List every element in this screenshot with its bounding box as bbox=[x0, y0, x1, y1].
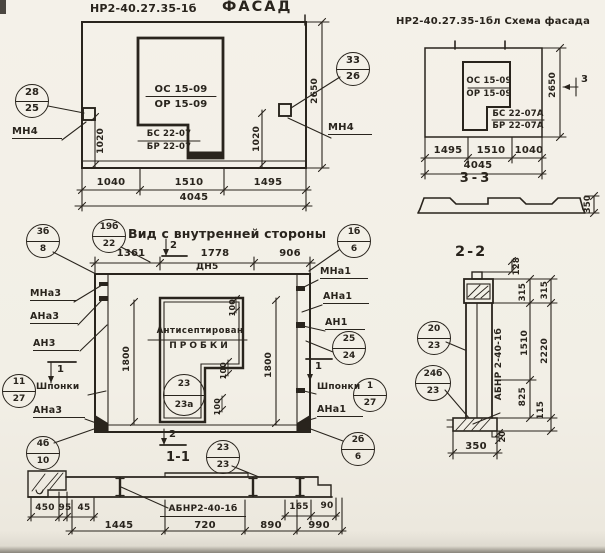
label-an1: АН1 bbox=[325, 318, 365, 330]
inner-view-title: Вид с внутренней стороны bbox=[128, 227, 326, 241]
facade-title: Фасад bbox=[222, 0, 292, 16]
label-abnr-2-2: АБНР 2-40-1б bbox=[494, 328, 505, 400]
facade-code: НР2-40.27.35-1б bbox=[90, 3, 197, 15]
section-3-marker: 3 bbox=[581, 74, 588, 85]
dim-115: 115 bbox=[536, 401, 547, 419]
facade-window-label-br: БР 22-07 bbox=[138, 143, 200, 152]
callout-4b-10: 4б10 bbox=[26, 436, 60, 470]
dim-4045-scheme: 4045 bbox=[458, 160, 498, 171]
dim-1040: 1040 bbox=[88, 177, 134, 188]
dim-1445: 1445 bbox=[103, 520, 135, 531]
facade-window-label-or: ОР 15-09 bbox=[146, 99, 216, 110]
dim-450: 450 bbox=[32, 504, 58, 514]
scan-artifact bbox=[0, 0, 6, 14]
callout-2b-6: 2б6 bbox=[341, 432, 375, 466]
callout-20-23: 2023 bbox=[417, 321, 451, 355]
dim-825: 825 bbox=[518, 387, 529, 406]
label-an3: АН3 bbox=[33, 339, 79, 351]
callout-25-24: 2524 bbox=[332, 331, 366, 365]
dim-1510-facade: 1510 bbox=[166, 177, 212, 188]
dim-45: 45 bbox=[75, 504, 93, 514]
dim-1495-facade: 1495 bbox=[245, 177, 291, 188]
dim-2650-scheme: 2650 bbox=[548, 72, 559, 98]
dim-100-plug1: 100 bbox=[227, 299, 238, 316]
label-shponki-left: Шпонки bbox=[36, 383, 79, 393]
section-2-2-profile bbox=[445, 272, 500, 437]
section-2-marker-bottom: 2 bbox=[169, 429, 176, 440]
label-mna3: МНа3 bbox=[30, 289, 76, 301]
dim-315-outer: 315 bbox=[540, 281, 551, 299]
scheme-label-bs: БС 22-07А bbox=[490, 110, 546, 119]
section-3-3-title: 3-3 bbox=[446, 172, 506, 186]
dim-95: 95 bbox=[58, 504, 72, 514]
scan-shadow bbox=[0, 546, 605, 553]
dim-1020-right: 1020 bbox=[252, 126, 263, 152]
callout-23-23: 2323 bbox=[206, 440, 240, 474]
dim-1778: 1778 bbox=[192, 248, 238, 259]
anchor-label-mn4-right: МН4 bbox=[328, 122, 372, 135]
section-2-2-title: 2-2 bbox=[455, 245, 487, 261]
label-abnr-1-1: АБНР2-40-1б bbox=[160, 505, 246, 517]
anchor-label-mn4-left: МН4 bbox=[12, 126, 62, 139]
scheme-title-text: Схема фасада bbox=[504, 16, 590, 27]
label-ana3-lower: АНа3 bbox=[33, 406, 85, 418]
label-ana1: АНа1 bbox=[323, 292, 369, 304]
dim-1361: 1361 bbox=[108, 248, 154, 259]
drawing-linework bbox=[0, 0, 605, 553]
callout-3b-8: 3б8 bbox=[26, 224, 60, 258]
callout-23-23a: 2323а bbox=[163, 374, 205, 416]
dim-1510-scheme: 1510 bbox=[469, 145, 513, 156]
blueprint-canvas: НР2-40.27.35-1б Фасад ОС 15-09 ОР 15-09 … bbox=[0, 0, 605, 553]
label-ana3: АНа3 bbox=[30, 312, 78, 324]
dim-100-plug2: 100 bbox=[218, 362, 229, 379]
dim-906: 906 bbox=[272, 248, 308, 259]
callout-11-27: 1127 bbox=[2, 374, 36, 408]
callout-24b-23: 24б23 bbox=[415, 365, 451, 401]
dim-1020-left: 1020 bbox=[96, 128, 107, 154]
label-ana1-lower: АНа1 bbox=[317, 405, 363, 417]
section-1-marker-left: 1 bbox=[57, 364, 64, 375]
section-1-marker-right: 1 bbox=[315, 361, 322, 372]
dim-1040-scheme: 1040 bbox=[512, 145, 546, 156]
dim-890: 890 bbox=[257, 520, 285, 531]
label-mna1: МНа1 bbox=[320, 267, 368, 279]
dim-165: 165 bbox=[287, 503, 311, 513]
dim-1800-right: 1800 bbox=[264, 352, 275, 378]
dim-720: 720 bbox=[191, 520, 219, 531]
dim-1510-section22: 1510 bbox=[520, 330, 531, 356]
dim-90: 90 bbox=[318, 502, 336, 512]
dim-100-plug3: 100 bbox=[212, 398, 223, 415]
dim-350-section33: 350 bbox=[583, 195, 594, 213]
note-probki: пробки bbox=[162, 342, 238, 352]
dim-1495-scheme: 1495 bbox=[427, 145, 469, 156]
dim-990: 990 bbox=[305, 520, 333, 531]
callout-28-25: 2825 bbox=[15, 84, 49, 118]
section-3-3-profile bbox=[418, 193, 599, 217]
dim-1800-left: 1800 bbox=[122, 346, 133, 372]
facade-window-label-bs: БС 22-07 bbox=[138, 130, 200, 139]
dim-2220: 2220 bbox=[540, 338, 551, 364]
dim-315-inner: 315 bbox=[518, 283, 529, 301]
callout-1b-6: 1б6 bbox=[337, 224, 371, 258]
section-1-1-title: 1-1 bbox=[166, 451, 190, 465]
dim-128: 128 bbox=[512, 257, 523, 275]
scheme-title: НР2-40.27.35-1бл Схема фасада bbox=[396, 16, 590, 27]
inner-view-leaders bbox=[53, 247, 343, 477]
facade-window-label-os: ОС 15-09 bbox=[146, 84, 216, 95]
dim-350-section22: 350 bbox=[458, 441, 494, 452]
section-2-marker-top: 2 bbox=[170, 240, 177, 251]
scheme-code: НР2-40.27.35-1бл bbox=[396, 16, 501, 27]
note-antiseptic: Антисептирован bbox=[150, 327, 250, 336]
scheme-label-br: БР 22-07А bbox=[490, 122, 546, 131]
scheme-label-os: ОС 15-09 bbox=[466, 77, 512, 86]
callout-33-26: 3326 bbox=[336, 52, 370, 86]
note-dn5: ДН5 bbox=[196, 263, 218, 273]
dim-20: 20 bbox=[497, 431, 508, 443]
dim-2650-facade: 2650 bbox=[310, 78, 321, 104]
dim-4045-facade: 4045 bbox=[171, 192, 217, 203]
scheme-label-or: ОР 15-09 bbox=[466, 90, 512, 99]
